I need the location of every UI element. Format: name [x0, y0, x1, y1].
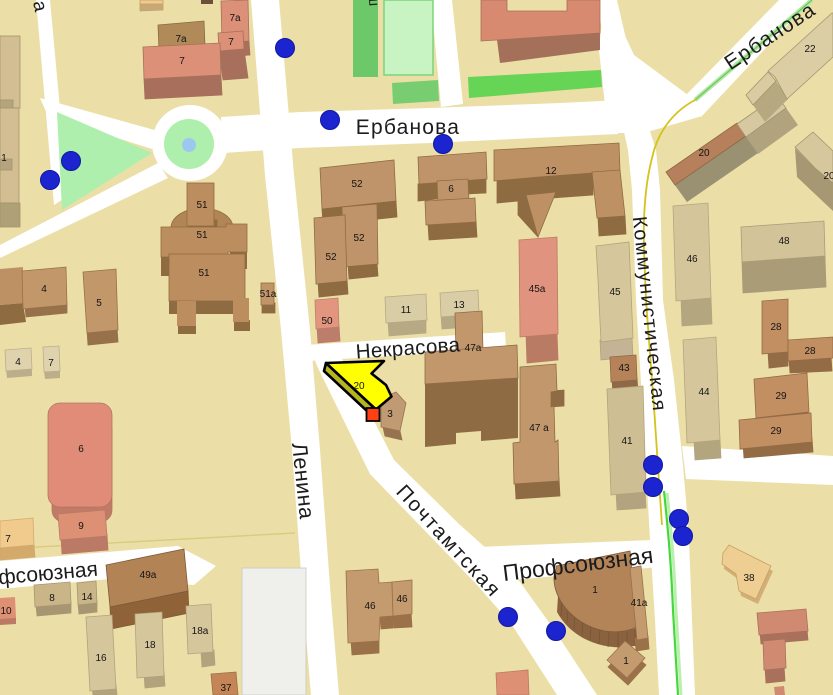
svg-text:29: 29	[775, 391, 787, 402]
svg-text:20: 20	[823, 171, 833, 182]
svg-text:13: 13	[453, 300, 465, 311]
svg-text:8: 8	[49, 593, 55, 604]
svg-text:12: 12	[545, 166, 557, 177]
svg-text:1: 1	[592, 585, 598, 596]
svg-text:52: 52	[351, 179, 363, 190]
svg-text:52: 52	[353, 233, 365, 244]
svg-text:47а: 47а	[465, 343, 482, 354]
svg-text:51: 51	[198, 268, 210, 279]
svg-text:4: 4	[41, 284, 47, 295]
svg-text:1: 1	[1, 153, 7, 164]
svg-text:22: 22	[804, 44, 816, 55]
svg-text:6: 6	[448, 184, 454, 195]
svg-text:7: 7	[5, 534, 11, 545]
svg-text:48: 48	[778, 236, 790, 247]
svg-text:47 а: 47 а	[529, 423, 549, 434]
svg-text:45: 45	[609, 287, 621, 298]
svg-text:10: 10	[0, 606, 12, 617]
svg-text:4: 4	[15, 357, 21, 368]
svg-text:9: 9	[78, 521, 84, 532]
svg-text:46: 46	[686, 254, 698, 265]
svg-text:38: 38	[743, 573, 755, 584]
svg-text:ш: ш	[365, 0, 383, 7]
svg-text:45а: 45а	[529, 284, 546, 295]
svg-text:6: 6	[78, 444, 84, 455]
svg-text:28: 28	[804, 346, 816, 357]
svg-text:3: 3	[387, 409, 393, 420]
svg-text:7: 7	[48, 358, 54, 369]
svg-text:18а: 18а	[192, 626, 209, 637]
svg-text:16: 16	[95, 653, 107, 664]
svg-text:20: 20	[698, 148, 710, 159]
svg-text:7а: 7а	[229, 13, 241, 24]
svg-text:41а: 41а	[631, 598, 648, 609]
svg-text:46: 46	[396, 594, 408, 605]
svg-text:52: 52	[325, 252, 337, 263]
svg-text:18: 18	[144, 640, 156, 651]
svg-text:51: 51	[196, 200, 208, 211]
svg-text:1: 1	[623, 656, 629, 667]
svg-text:41: 41	[621, 436, 633, 447]
svg-text:37: 37	[220, 683, 232, 694]
svg-text:46: 46	[364, 601, 376, 612]
svg-text:11: 11	[401, 305, 412, 316]
svg-text:43: 43	[618, 363, 630, 374]
svg-text:50: 50	[321, 316, 333, 327]
svg-text:51а: 51а	[260, 289, 277, 300]
svg-text:29: 29	[770, 426, 782, 437]
svg-text:44: 44	[698, 387, 710, 398]
svg-text:5: 5	[96, 298, 102, 309]
svg-text:14: 14	[81, 592, 93, 603]
svg-text:28: 28	[770, 322, 782, 333]
svg-text:49а: 49а	[140, 570, 157, 581]
svg-text:7а: 7а	[175, 34, 187, 45]
svg-text:7: 7	[179, 56, 185, 67]
svg-text:20: 20	[353, 381, 365, 392]
svg-text:51: 51	[196, 230, 208, 241]
svg-text:7: 7	[228, 37, 234, 48]
